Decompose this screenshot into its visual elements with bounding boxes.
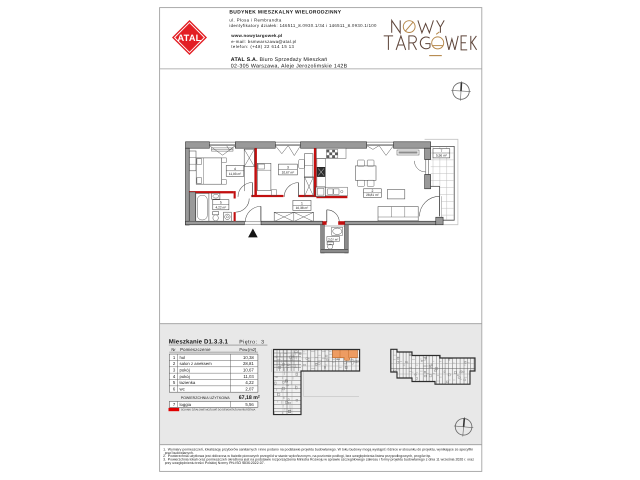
svg-text:ul. Płosa i Rembrandta: ul. Płosa i Rembrandta bbox=[229, 18, 281, 23]
svg-text:identyfikatory działek: 146511: identyfikatory działek: 146511_8.0930.1/… bbox=[229, 23, 377, 28]
svg-text:02-305 Warszawa, Aleje Jerozol: 02-305 Warszawa, Aleje Jerozolimskie 142… bbox=[231, 63, 348, 69]
svg-text:4,22: 4,22 bbox=[245, 380, 254, 385]
svg-text:5,56: 5,56 bbox=[245, 402, 254, 407]
svg-text:11,03: 11,03 bbox=[243, 374, 254, 379]
svg-text:www.nowytargowek.pl: www.nowytargowek.pl bbox=[230, 33, 282, 38]
svg-text:BUDYNEK MIESZKALNY WIELORODZIN: BUDYNEK MIESZKALNY WIELORODZINNY bbox=[229, 9, 341, 15]
svg-text:2,07 m²: 2,07 m² bbox=[328, 237, 338, 241]
svg-text:28,81 m²: 28,81 m² bbox=[366, 193, 379, 197]
svg-text:28,81: 28,81 bbox=[243, 361, 254, 366]
svg-text:10,67: 10,67 bbox=[243, 368, 254, 373]
svg-text:ATAL S.A. Biuro Sprzedaży Mies: ATAL S.A. Biuro Sprzedaży Mieszkań bbox=[231, 57, 328, 63]
svg-text:ŚCIANKI DZIAŁOWE MOŻLIWE DO DE: ŚCIANKI DZIAŁOWE MOŻLIWE DO DEMONTAŻU/WY… bbox=[181, 408, 256, 412]
svg-text:5: 5 bbox=[220, 201, 222, 205]
svg-text:pokój: pokój bbox=[180, 368, 190, 373]
svg-text:67,18 m2: 67,18 m2 bbox=[239, 395, 260, 402]
svg-text:Pow.[m2]: Pow.[m2] bbox=[239, 347, 256, 352]
svg-text:Wymiary pomieszczeń, lokalizac: Wymiary pomieszczeń, lokalizację przybor… bbox=[168, 447, 473, 451]
svg-text:10,38: 10,38 bbox=[243, 355, 254, 360]
svg-text:1: 1 bbox=[301, 201, 303, 205]
svg-text:wc: wc bbox=[180, 387, 186, 392]
svg-text:loggia: loggia bbox=[180, 402, 192, 407]
svg-text:telefon: (+48) 22 614 15 13: telefon: (+48) 22 614 15 13 bbox=[231, 44, 294, 49]
svg-text:ATAL: ATAL bbox=[178, 33, 202, 43]
svg-text:3: 3 bbox=[287, 165, 289, 169]
svg-text:Nr: Nr bbox=[171, 347, 176, 352]
svg-text:11,03 m²: 11,03 m² bbox=[229, 172, 241, 176]
svg-text:hol: hol bbox=[180, 355, 186, 360]
svg-text:pokój: pokój bbox=[180, 374, 190, 379]
svg-text:5,56 m²: 5,56 m² bbox=[436, 154, 447, 158]
svg-text:przy uwzględnieniu treści Pols: przy uwzględnieniu treści Polskiej Normy… bbox=[165, 461, 265, 465]
svg-text:Pomieszczenie: Pomieszczenie bbox=[180, 347, 211, 352]
svg-text:2,07: 2,07 bbox=[245, 387, 254, 392]
svg-text:Piętro: 3: Piętro: 3 bbox=[239, 339, 264, 345]
svg-text:Mieszkanie D1.3.3.1: Mieszkanie D1.3.3.1 bbox=[169, 338, 229, 345]
svg-text:2: 2 bbox=[371, 189, 373, 193]
svg-text:7: 7 bbox=[440, 149, 442, 153]
svg-text:4,22 m²: 4,22 m² bbox=[215, 206, 226, 210]
svg-text:POWIERZCHNIA UŻYTKOWA: POWIERZCHNIA UŻYTKOWA bbox=[181, 395, 231, 400]
svg-text:4: 4 bbox=[234, 167, 236, 171]
svg-text:salon z aneksem: salon z aneksem bbox=[180, 361, 213, 366]
svg-text:10,38 m²: 10,38 m² bbox=[296, 206, 309, 210]
svg-text:łazienka: łazienka bbox=[180, 380, 196, 385]
svg-text:10,67 m²: 10,67 m² bbox=[282, 171, 295, 175]
